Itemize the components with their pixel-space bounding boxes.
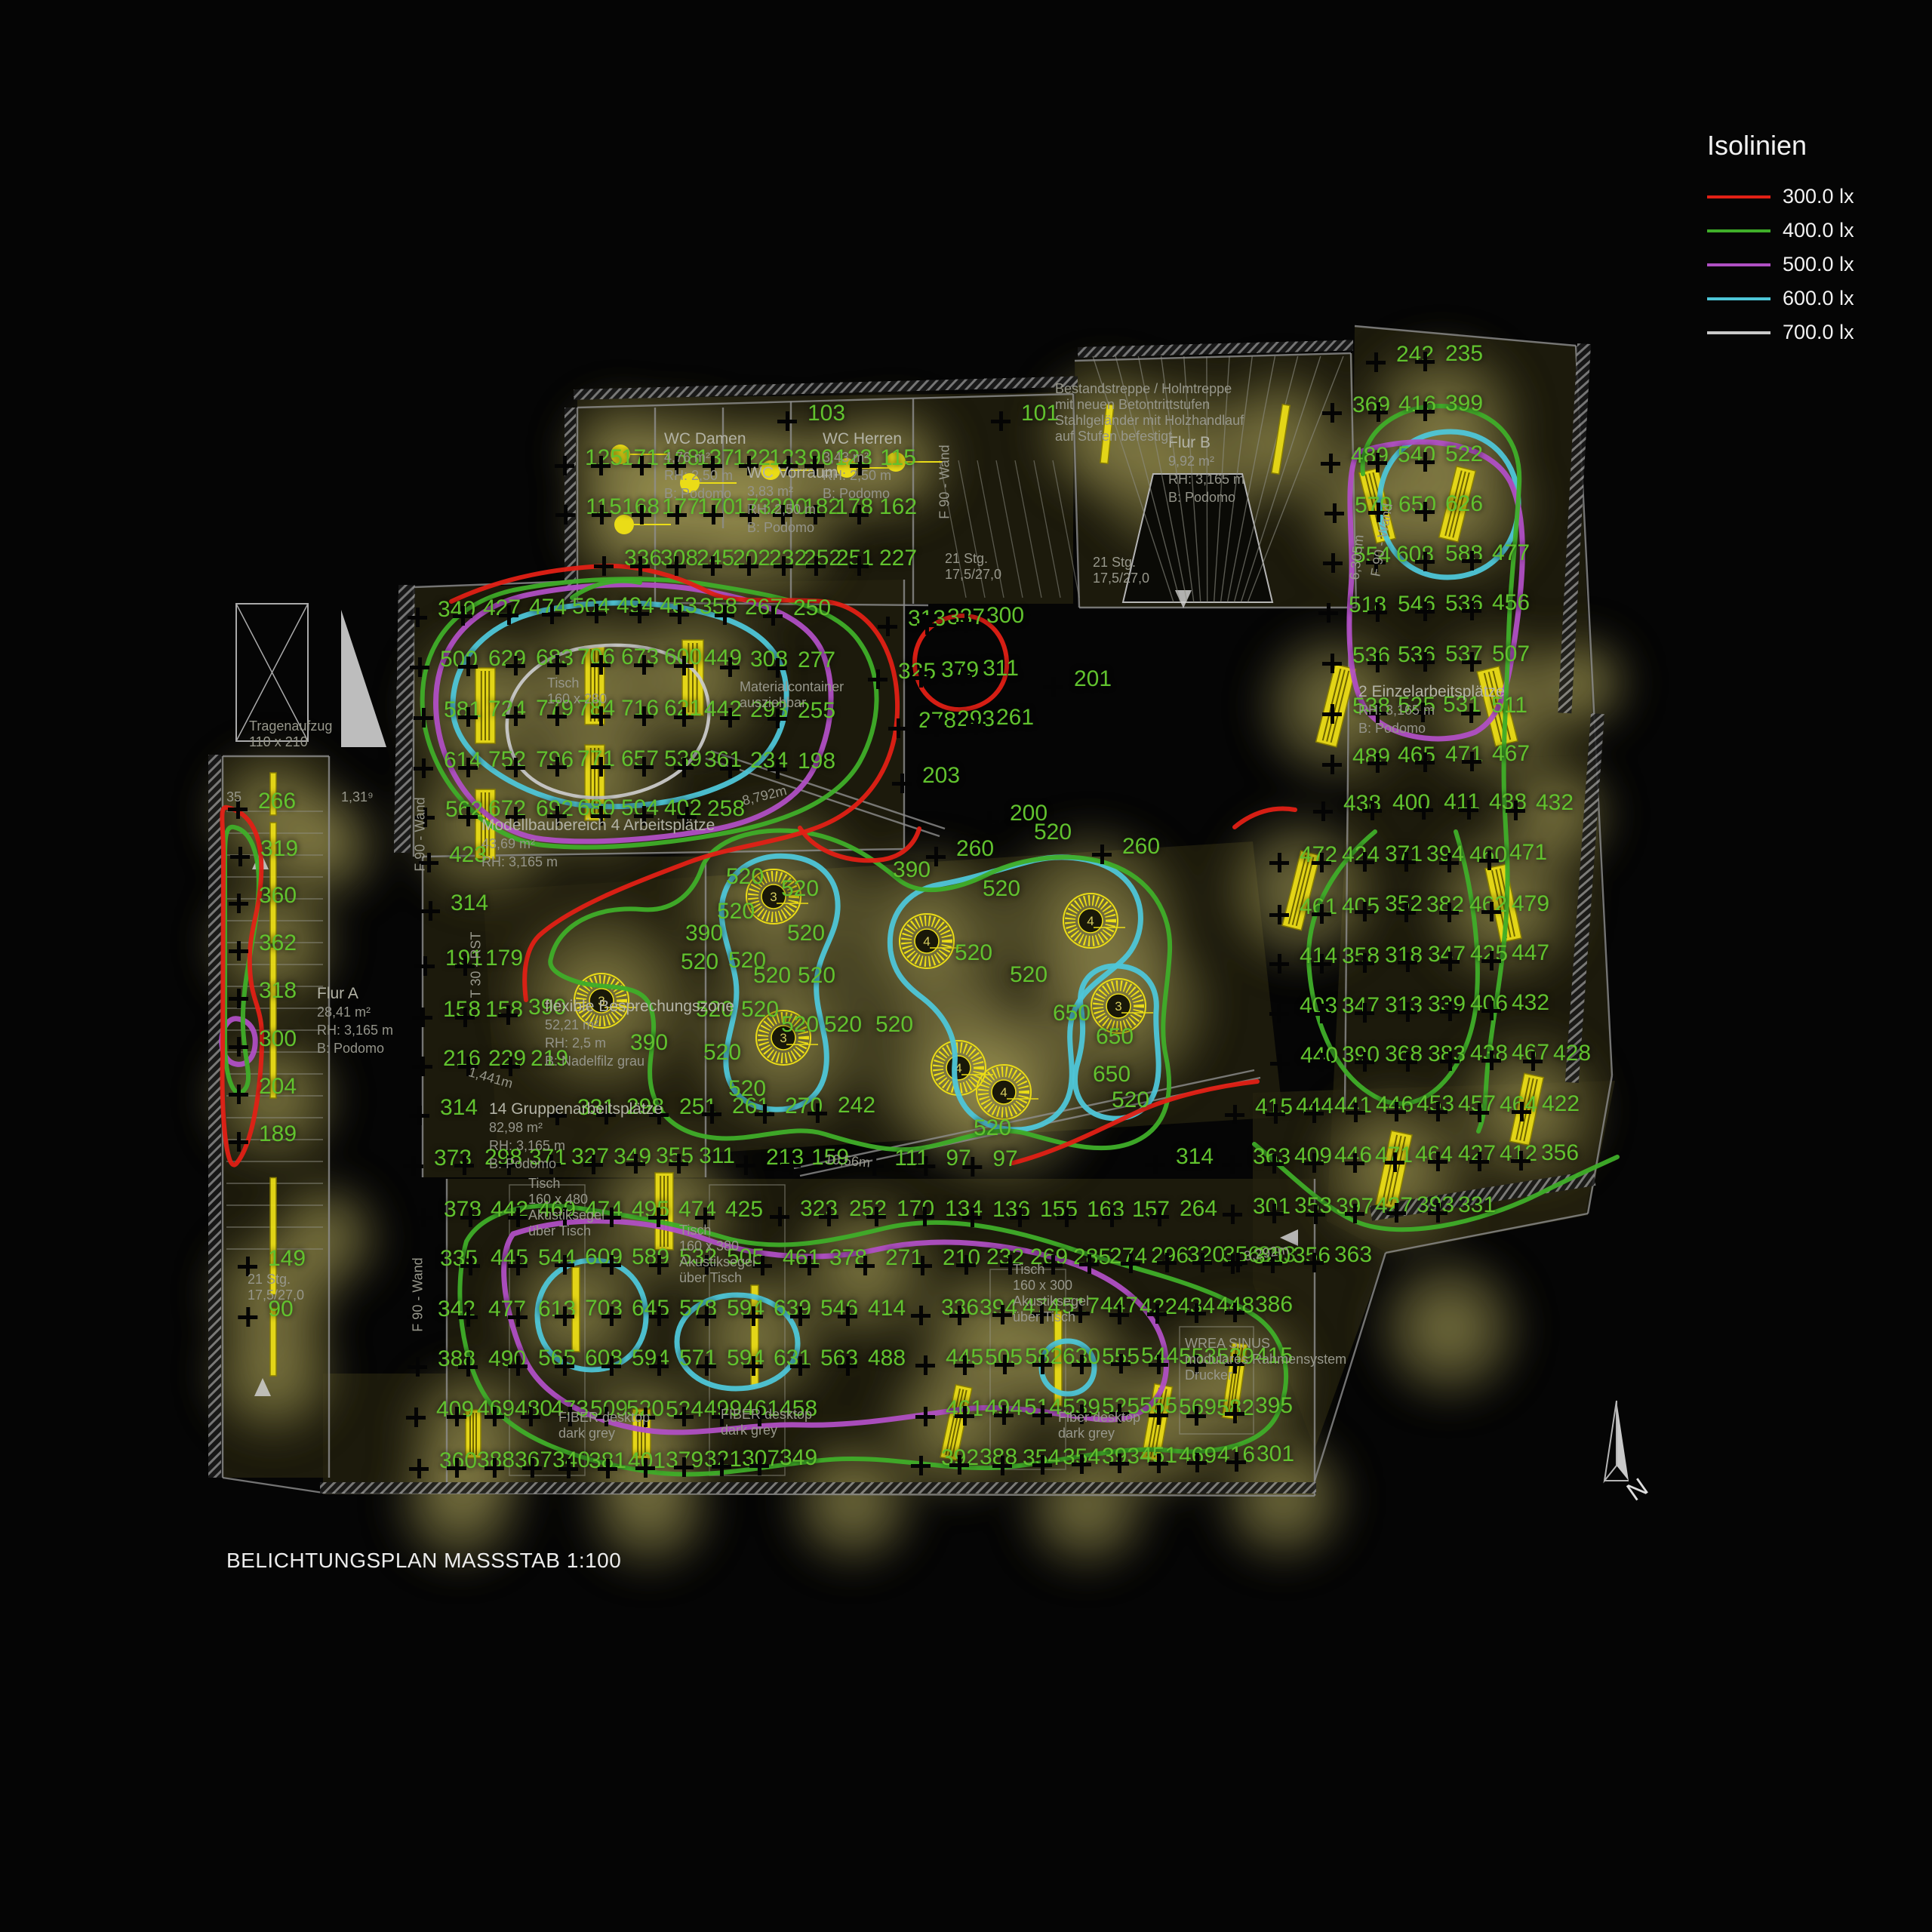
legend-line-swatch <box>1707 297 1770 300</box>
svg-text:3: 3 <box>1115 999 1121 1014</box>
legend-entry-600-0-lx: 600.0 lx <box>1707 281 1854 315</box>
linear-luminaire <box>270 773 276 815</box>
legend-entry-label: 600.0 lx <box>1783 287 1854 310</box>
north-arrow: N <box>1585 1381 1736 1547</box>
linear-luminaire <box>270 823 276 943</box>
ramp-triangle <box>341 610 386 747</box>
legend-entry-label: 500.0 lx <box>1783 253 1854 276</box>
legend-line-swatch <box>1707 229 1770 232</box>
linear-luminaire <box>751 1285 758 1386</box>
plan-title: BELICHTUNGSPLAN MASSSTAB 1:100 <box>226 1549 621 1573</box>
lighting-plan-stage: 34434334 1031011251711681371221239012311… <box>0 0 1932 1932</box>
north-needle-filled <box>1617 1401 1629 1481</box>
linear-luminaire <box>572 1267 580 1352</box>
svg-text:4: 4 <box>1087 914 1094 928</box>
legend-entry-700-0-lx: 700.0 lx <box>1707 315 1854 349</box>
legend-line-swatch <box>1707 263 1770 266</box>
linear-luminaire <box>475 668 495 743</box>
legend-entries: 300.0 lx400.0 lx500.0 lx600.0 lx700.0 lx <box>1707 180 1854 349</box>
legend-entry-label: 400.0 lx <box>1783 219 1854 242</box>
svg-text:3: 3 <box>598 994 605 1008</box>
floor-plan-canvas: 34434334 <box>0 0 1932 1932</box>
isoline-legend: Isolinien 300.0 lx400.0 lx500.0 lx600.0 … <box>1707 130 1854 349</box>
svg-text:3: 3 <box>770 890 777 904</box>
legend-entry-400-0-lx: 400.0 lx <box>1707 214 1854 248</box>
svg-text:4: 4 <box>923 934 930 949</box>
legend-line-swatch <box>1707 331 1770 334</box>
linear-luminaire <box>270 1308 276 1376</box>
linear-luminaire <box>585 646 605 724</box>
legend-line-swatch <box>1707 195 1770 198</box>
linear-luminaire <box>270 947 276 1098</box>
legend-entry-label: 700.0 lx <box>1783 321 1854 344</box>
svg-text:3: 3 <box>780 1031 786 1045</box>
linear-luminaire <box>270 1178 276 1295</box>
legend-entry-300-0-lx: 300.0 lx <box>1707 180 1854 214</box>
linear-luminaire <box>466 1410 481 1458</box>
linear-luminaire <box>632 1409 651 1459</box>
legend-entry-500-0-lx: 500.0 lx <box>1707 248 1854 281</box>
legend-entry-label: 300.0 lx <box>1783 185 1854 208</box>
svg-text:4: 4 <box>1000 1085 1007 1100</box>
north-needle-outline <box>1604 1401 1617 1481</box>
linear-luminaire <box>655 1173 673 1250</box>
legend-title: Isolinien <box>1707 130 1854 162</box>
